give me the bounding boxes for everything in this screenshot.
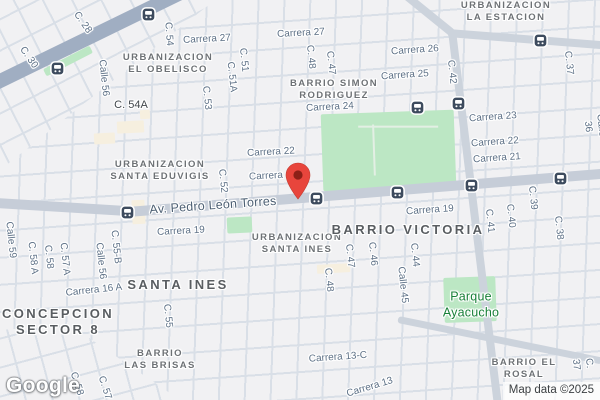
- street-label: C. 38: [551, 215, 566, 240]
- street-label: C. 37: [561, 50, 576, 75]
- street-label: C. 44: [407, 242, 422, 267]
- area-label: URBANIZACION LA ESTACION: [461, 0, 551, 24]
- street-label: Carrera: [249, 170, 284, 184]
- street-label: Calle 36: [580, 113, 600, 138]
- transit-station-icon[interactable]: [533, 33, 548, 48]
- map-pin[interactable]: [285, 162, 311, 200]
- street-label: Carrera 27: [183, 33, 231, 48]
- transit-station-icon[interactable]: [120, 205, 135, 220]
- street-label: C. 40: [503, 203, 518, 228]
- transit-station-icon[interactable]: [141, 7, 156, 22]
- area-label: URBANIZACION EL OBELISCO: [123, 52, 213, 76]
- transit-station-icon[interactable]: [451, 96, 466, 111]
- street-label: Carrera 24: [306, 101, 354, 116]
- park-area: [321, 110, 457, 192]
- map-pin-icon: [285, 162, 311, 200]
- street-label: Carrera 22: [247, 146, 295, 161]
- street-label: C. 58: [41, 244, 56, 269]
- park-label: Parque Ayacucho: [443, 289, 499, 320]
- transit-station-icon[interactable]: [50, 61, 65, 76]
- transit-station-icon[interactable]: [390, 185, 405, 200]
- street-label: C. 48: [303, 44, 318, 69]
- area-label: BARRIO LAS BRISAS: [124, 348, 196, 372]
- area-label: SANTA INES: [127, 277, 228, 293]
- transit-station-icon[interactable]: [410, 100, 425, 115]
- street-label: Carrera 27: [277, 27, 325, 42]
- area-label: BARRIO EL ROSAL: [486, 357, 562, 381]
- area-label: BARRIO VICTORIA: [332, 222, 485, 238]
- park-area: [227, 216, 253, 233]
- transit-station-icon[interactable]: [464, 178, 479, 193]
- street-label: C. 53: [199, 85, 214, 110]
- street-label: C. 52: [215, 168, 230, 193]
- street-label: C. 39: [525, 185, 540, 210]
- area-label: CONCEPCION SECTOR 8: [2, 306, 114, 339]
- area-label: URBANIZACION SANTA INES: [252, 232, 342, 256]
- street-label: C. 51: [236, 47, 251, 72]
- building-footprint: [117, 120, 145, 133]
- building-footprint: [94, 132, 116, 144]
- street-label: Carrera 19: [157, 225, 205, 240]
- street-label: C. 46: [365, 241, 380, 266]
- street-label: C. 47: [323, 50, 338, 75]
- area-label: URBANIZACION SANTA EDUVIGIS: [110, 159, 209, 183]
- map-attribution: Map data ©2025: [503, 382, 600, 400]
- street-label: C. 47: [342, 243, 357, 268]
- street-label: C. 55: [160, 303, 175, 328]
- street-label: C. 54: [161, 22, 175, 47]
- street-label: C. 54A: [114, 99, 148, 113]
- street-label: C. 48: [321, 267, 336, 292]
- google-logo[interactable]: Google: [6, 374, 80, 398]
- area-label: BARRIO SIMON RODRIGUEZ: [290, 78, 378, 102]
- map-canvas[interactable]: C. 30C. 28Calle 56C. 54Carrera 27Carrera…: [0, 0, 600, 400]
- street-label: C. 42: [444, 59, 459, 84]
- transit-station-icon[interactable]: [553, 171, 568, 186]
- street-label: C. 37: [569, 354, 596, 375]
